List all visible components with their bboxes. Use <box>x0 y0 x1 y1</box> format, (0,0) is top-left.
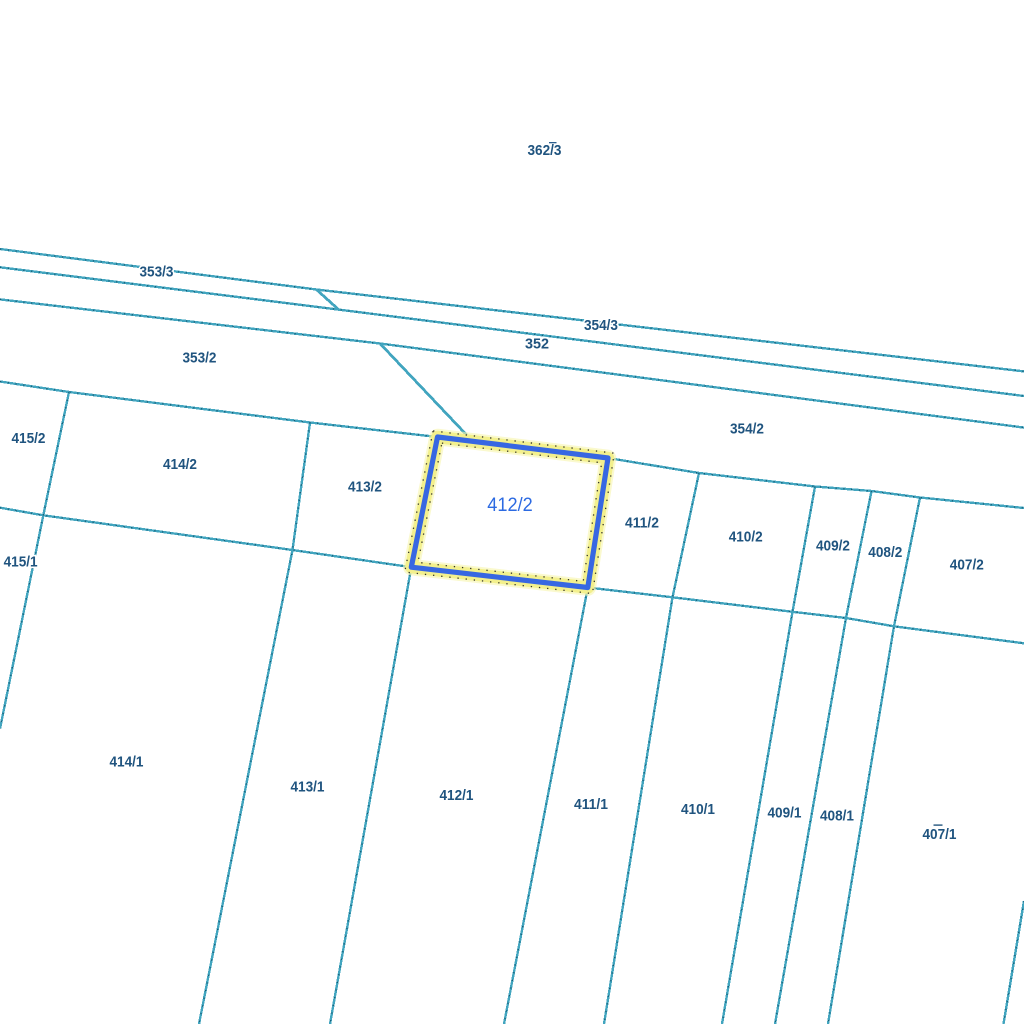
svg-text:411/1: 411/1 <box>574 796 608 813</box>
svg-text:407/1: 407/1 <box>923 826 957 843</box>
svg-text:414/2: 414/2 <box>163 456 197 473</box>
svg-text:410/1: 410/1 <box>681 801 715 818</box>
svg-text:412/1: 412/1 <box>440 787 474 804</box>
svg-text:409/2: 409/2 <box>816 538 850 555</box>
svg-text:410/2: 410/2 <box>729 529 763 546</box>
svg-text:408/2: 408/2 <box>868 544 902 561</box>
svg-text:354/3: 354/3 <box>584 317 618 334</box>
svg-text:362/3: 362/3 <box>528 142 562 159</box>
svg-text:354/2: 354/2 <box>730 421 764 438</box>
svg-text:352: 352 <box>525 336 549 353</box>
svg-text:412/2: 412/2 <box>487 495 533 516</box>
svg-text:353/3: 353/3 <box>140 263 174 280</box>
svg-text:413/2: 413/2 <box>348 479 382 496</box>
svg-text:415/2: 415/2 <box>12 430 46 447</box>
svg-text:353/2: 353/2 <box>183 350 217 367</box>
svg-text:407/2: 407/2 <box>950 556 984 573</box>
svg-text:408/1: 408/1 <box>820 808 854 825</box>
svg-text:411/2: 411/2 <box>625 514 659 531</box>
svg-text:414/1: 414/1 <box>110 754 144 771</box>
svg-text:415/1: 415/1 <box>4 554 38 571</box>
svg-text:409/1: 409/1 <box>768 805 802 822</box>
svg-text:413/1: 413/1 <box>291 779 325 796</box>
